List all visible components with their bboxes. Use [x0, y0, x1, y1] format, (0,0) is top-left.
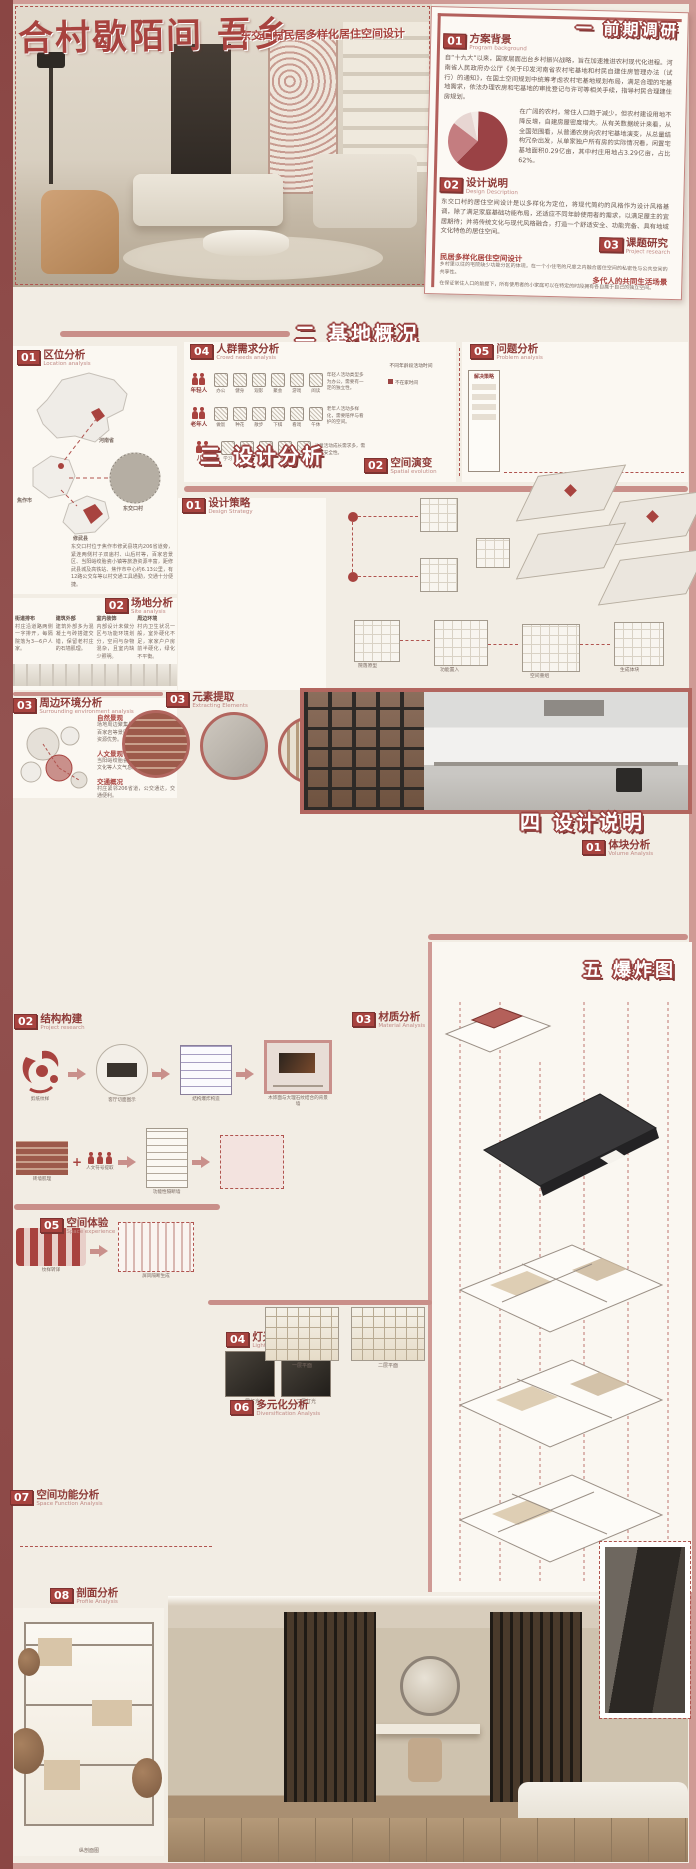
location-maps	[17, 366, 173, 540]
research-card: 一 前期调研 01 方案背景Program background 自“十九大”以…	[424, 6, 689, 300]
plus-sign: +	[72, 1155, 82, 1169]
frame-bottom	[0, 1863, 696, 1869]
chart-legend: 不在家时间	[388, 379, 454, 386]
element-circle-concrete	[200, 712, 268, 780]
crowd-note: 年轻人活动类型多为办公，需要有一定的独立性。	[327, 373, 366, 393]
problem-header: 05 问题分析Problem analysis	[470, 344, 543, 361]
section-research-header: 03 课题研究Project research	[599, 237, 670, 256]
design-description-paragraph: 东交口村的居住空间设计是以多样化为定位，将现代简约的风格作为设计风格基调，除了满…	[440, 197, 669, 242]
background-paragraph: 自“十九大”以来，国家层面出台乡村振兴战略，旨在加速推进农村现代化进程。河南省人…	[444, 53, 673, 107]
crowd-header: 04 人群需求分析Crowd needs analysis	[190, 344, 279, 361]
curtain-photo-frame	[600, 1542, 690, 1718]
evolution-plate	[516, 523, 626, 580]
crowd-group-label: 年轻人	[188, 386, 210, 394]
activity-glyph	[233, 373, 247, 387]
activity-icon: 看戏	[289, 407, 305, 428]
activity-icon: 种花	[232, 407, 248, 428]
activity-icon: 办公	[213, 373, 229, 394]
kitchen-photo	[300, 688, 692, 814]
left-accent-strip	[0, 0, 13, 1869]
living-room-section-plate: 客厅切面图示	[96, 1044, 148, 1104]
activity-label: 下棋	[270, 422, 286, 428]
activity-label: 办公	[213, 388, 229, 394]
evolution-stage-box	[522, 624, 580, 672]
crowd-row: 年轻人办公健身观影聚会游戏阅读年轻人活动类型多为办公，需要有一定的独立性。	[188, 366, 366, 400]
partition-dashed-box	[220, 1135, 284, 1189]
activity-label: 健身	[232, 388, 248, 394]
site-col-title: 室内装饰	[97, 616, 135, 624]
divider-bar	[428, 934, 688, 940]
activity-glyph	[271, 407, 285, 421]
land-use-pie-chart	[444, 107, 512, 175]
activity-label: 阅读	[308, 388, 324, 394]
function-header: 07 空间功能分析Space Function Analysis	[10, 1490, 103, 1507]
flow-arrow	[152, 1068, 176, 1080]
activity-label: 种花	[232, 422, 248, 428]
floor-plan-2	[352, 1308, 424, 1360]
person-icon	[192, 407, 198, 419]
divider-bar	[60, 331, 290, 337]
section-background-header: 01 方案背景Program background	[443, 33, 527, 52]
structure-flow-1: 剪纸纹样 客厅切面图示 结构爆炸构造 木饰面与大理石纹结合的背景墙	[16, 1040, 288, 1109]
activity-glyph	[252, 407, 266, 421]
flow-link	[400, 640, 430, 641]
site-col-title: 街道排布	[15, 616, 53, 624]
activity-icon: 健身	[232, 373, 248, 394]
flow-arrow	[118, 1156, 142, 1168]
activity-icon: 做饭	[213, 407, 229, 428]
site-col-title: 周边环境	[137, 616, 175, 624]
person-icon	[192, 373, 198, 385]
site-analysis-card: 02 场地分析Site analysis 街道排布村庄沿道路两侧一字排开，每隔院…	[13, 598, 177, 690]
activity-glyph	[271, 373, 285, 387]
divider-bar	[14, 1204, 220, 1210]
tree-silhouette	[132, 1758, 162, 1798]
material-header: 03 材质分析Material Analysis	[352, 1012, 425, 1029]
volume-header: 01 体块分析Volume Analysis	[582, 840, 653, 857]
hero-armchair	[41, 190, 119, 274]
activity-icons: 做饭种花散步下棋看戏午休	[213, 407, 324, 428]
strategy-row	[472, 384, 496, 390]
evolution-stage-box	[354, 620, 400, 662]
activity-glyph	[214, 407, 228, 421]
activity-icon: 散步	[251, 407, 267, 428]
wardrobe-left	[284, 1612, 376, 1802]
evolution-stage-box	[434, 620, 488, 666]
flow-link	[358, 516, 418, 517]
console-desk	[376, 1724, 480, 1734]
flow-arrow	[68, 1068, 92, 1080]
experience-header: 05 空间体验Space experience	[40, 1218, 115, 1235]
screen-dashed-box: 屏风隔断生成	[118, 1222, 194, 1280]
village-skyline-sketch	[13, 664, 177, 686]
design-strategy-card: 01 设计策略Design Strategy	[178, 498, 326, 690]
site-columns: 街道排布村庄沿道路两侧一字排开，每隔院落为3—6户人家。 建筑外部建筑外部多为混…	[15, 616, 175, 661]
strategy-row	[472, 404, 496, 410]
activity-icon: 下棋	[270, 407, 286, 428]
hero-doorway	[171, 44, 231, 184]
flow-arrow	[90, 1245, 114, 1257]
site-col-title: 建筑外部	[56, 616, 94, 624]
figure-symbols: 人文符号提取	[86, 1152, 114, 1172]
location-paragraph: 东交口村位于焦作市修武县境内206省道旁，紧连两侧村子双庙村、山后村等，百家岩景…	[71, 544, 173, 589]
flow-link	[358, 576, 418, 577]
evolution-header: 02 空间演变Spatial evolution	[364, 458, 437, 475]
flow-link	[580, 644, 610, 645]
curtain-photo	[605, 1547, 685, 1713]
activity-icon: 午休	[308, 407, 324, 428]
section-number: 01	[443, 33, 467, 49]
flow-box	[420, 498, 458, 532]
activity-icon: 观影	[251, 373, 267, 394]
activity-label: 午休	[308, 422, 324, 428]
diverse-header: 06 多元化分析Diversification Analysis	[230, 1400, 320, 1417]
activity-label: 游戏	[289, 388, 305, 394]
elements-header: 03 元素提取Extracting Elements	[166, 692, 248, 709]
label-county: 修武县	[73, 536, 88, 544]
section-room	[44, 1760, 80, 1790]
tower-sketch: 功能性隔断墙	[146, 1128, 188, 1196]
flow-link	[352, 522, 353, 572]
structure-blueprint: 结构爆炸构造	[180, 1045, 232, 1103]
activity-icons: 办公健身观影聚会游戏阅读	[213, 373, 324, 394]
section-caption: 纵剖面图	[14, 1847, 164, 1854]
activity-glyph	[309, 407, 323, 421]
legend-swatch	[388, 379, 393, 384]
profile-header: 08 剖面分析Profile Analysis	[50, 1588, 118, 1605]
tree-silhouette	[18, 1648, 40, 1676]
crowd-note: 老年人活动多样化，需要陪伴与看护的空间。	[327, 407, 366, 427]
chapter-1-heading: 一 前期调研	[576, 15, 680, 42]
flow-dot	[348, 572, 358, 582]
activity-label: 观影	[251, 388, 267, 394]
round-mirror	[400, 1656, 460, 1716]
label-city: 焦作市	[17, 498, 32, 506]
function-diagram	[14, 1512, 219, 1586]
activity-icon: 聚会	[270, 373, 286, 394]
environment-bubble-diagram	[13, 716, 93, 800]
evolution-stage-box	[614, 622, 664, 666]
chapter-4-heading: 四 设计说明	[520, 806, 645, 835]
flow-arrow	[236, 1068, 260, 1080]
hero-floor-lamp	[49, 64, 53, 184]
activity-glyph	[233, 407, 247, 421]
chart-axis	[388, 369, 454, 377]
flow-dot	[348, 512, 358, 522]
goose-sketch-box	[476, 538, 510, 568]
pie-note-paragraph: 在广阔的农村，常住人口趋于减少，但农村建设用地不降反增，自建房屋密度增大。从有关…	[518, 107, 671, 169]
activity-glyph	[290, 373, 304, 387]
structure-flow-2: 砖墙肌理 + 人文符号提取 功能性隔断墙	[16, 1128, 288, 1196]
function-link-line	[20, 1546, 212, 1547]
floor-plan-1	[266, 1308, 338, 1360]
chart-title: 不同年龄段活动时间	[368, 362, 454, 369]
activity-icon: 阅读	[308, 373, 324, 394]
strategy-row	[472, 394, 496, 400]
poster: { "poster": { "title": "合村歇陌间 吾乡", "subt…	[0, 0, 696, 1869]
activity-glyph	[252, 373, 266, 387]
crowd-row: 老年人做饭种花散步下棋看戏午休老年人活动多样化，需要陪伴与看护的空间。	[188, 400, 366, 434]
kitchen-range-hood	[544, 700, 604, 716]
label-province: 河南省	[99, 438, 114, 446]
divider-bar	[208, 1300, 432, 1305]
evolution-caption: 功能置入	[440, 666, 459, 673]
location-analysis-card: 01 区位分析Location analysis 河南省 焦作市 东交口村 修武…	[13, 346, 177, 594]
activity-glyph	[309, 373, 323, 387]
chapter-3-heading: 三 设计分析	[200, 440, 325, 469]
evolution-caption: 院落原型	[358, 662, 377, 669]
label-village: 东交口村	[123, 506, 143, 514]
location-header: 01 区位分析Location analysis	[17, 350, 91, 367]
activity-label: 看戏	[289, 422, 305, 428]
hero-staircase	[343, 22, 429, 172]
papercut-motif: 剪纸纹样	[16, 1045, 64, 1103]
flow-box	[420, 558, 458, 592]
section-room	[92, 1700, 132, 1726]
brick-texture: 砖墙肌理	[16, 1141, 68, 1183]
flow-arrow	[192, 1156, 216, 1168]
person-icon	[199, 373, 205, 385]
person-icon	[199, 407, 205, 419]
exploded-view-card: 五 爆炸图	[428, 942, 696, 1592]
kitchen-oven	[616, 768, 642, 792]
activity-glyph	[214, 373, 228, 387]
desk-chair	[408, 1738, 442, 1782]
site-header: 02 场地分析Site analysis	[105, 598, 173, 615]
activity-label: 聚会	[270, 388, 286, 394]
hero-sofa-2	[313, 154, 417, 228]
strategy-header: 01 设计策略Design Strategy	[182, 498, 253, 515]
hero-coffee-table	[203, 230, 289, 256]
activity-icon: 游戏	[289, 373, 305, 394]
evolution-caption: 空间重组	[530, 672, 549, 679]
section-design-description-header: 02 设计说明Design Description	[439, 177, 518, 196]
exploded-axonometric	[432, 942, 684, 1592]
wood-floor	[168, 1818, 688, 1862]
crowd-group: 年轻人	[188, 373, 210, 394]
activity-glyph	[290, 407, 304, 421]
activity-label: 散步	[251, 422, 267, 428]
evolution-caption: 生成体块	[620, 666, 639, 673]
kitchen-shelf-unit	[304, 692, 424, 810]
floor-plans: 一层平面 二层平面	[266, 1308, 424, 1369]
structure-header: 02 结构构建Project research	[14, 1014, 85, 1031]
activity-label: 做饭	[213, 422, 229, 428]
crowd-group: 老年人	[188, 407, 210, 428]
crowd-group-label: 老年人	[188, 420, 210, 428]
tv-wall-frame: 木饰面与大理石纹结合的背景墙	[264, 1040, 332, 1109]
flow-link	[488, 644, 518, 645]
poster-subtitle: 东交口村民居多样化居住空间设计	[240, 24, 430, 43]
spatial-evolution-card: 02 空间演变Spatial evolution 院落原型 功能置入 空间重组 …	[330, 452, 688, 690]
divider-bar	[13, 692, 163, 696]
hero-sofa	[133, 174, 283, 226]
evolution-plate	[598, 549, 696, 606]
section-room	[38, 1638, 72, 1666]
element-circle-brick	[122, 710, 190, 778]
kitchen-counter	[434, 762, 678, 766]
strategy-row	[472, 414, 496, 420]
section-render: 纵剖面图	[14, 1608, 164, 1856]
